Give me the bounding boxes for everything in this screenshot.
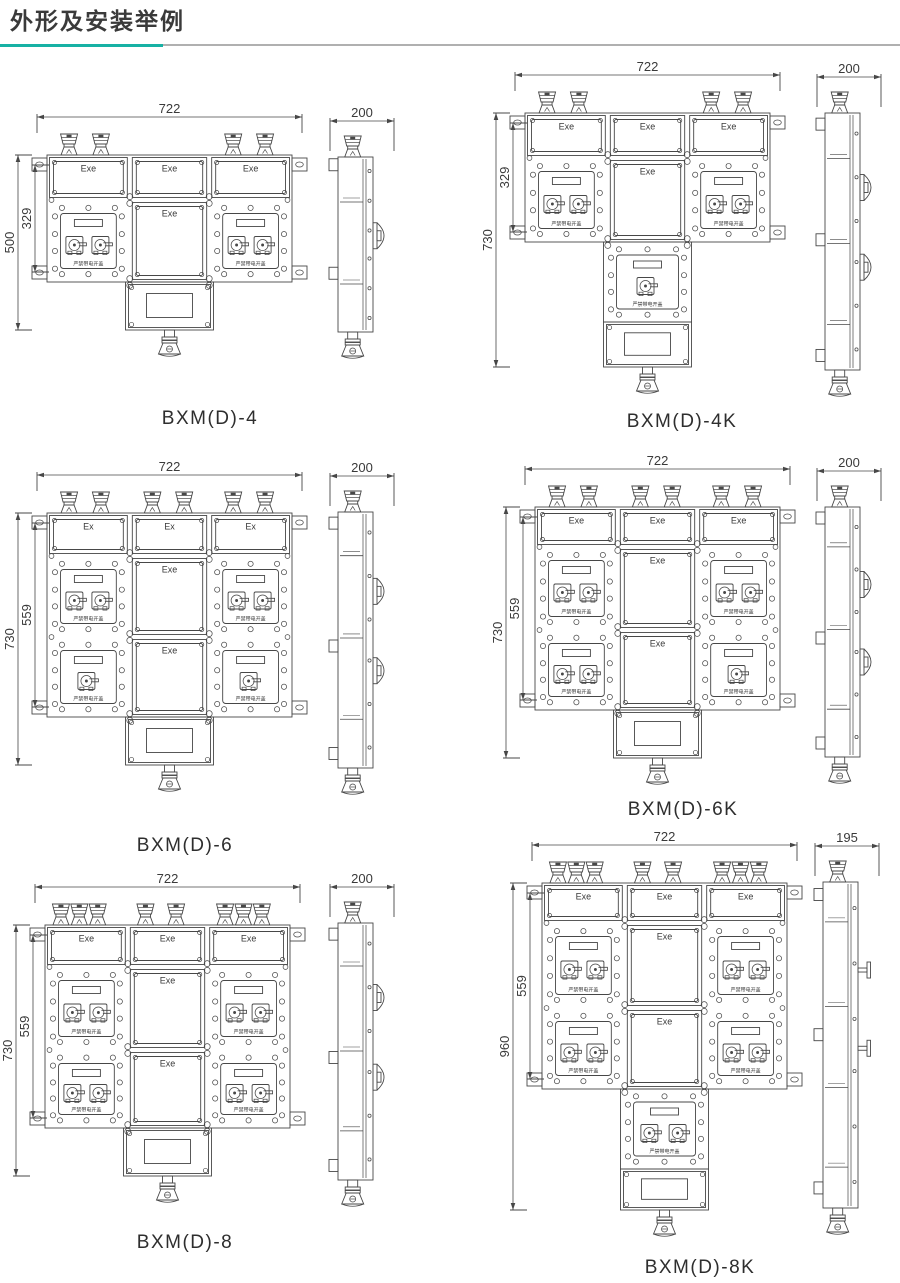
page-title: 外形及安装举例 [10,2,185,36]
svg-text:严禁带电开盖: 严禁带电开盖 [234,1029,264,1036]
svg-text:Exe: Exe [559,122,575,132]
svg-text:严禁带电开盖: 严禁带电开盖 [724,609,754,616]
side-view: 200 [318,456,430,810]
model-label: BXM(D)-4 [162,408,258,430]
svg-text:Ex: Ex [164,522,175,532]
svg-text:严禁带电开盖: 严禁带电开盖 [73,696,103,703]
svg-text:Exe: Exe [640,167,656,177]
svg-text:730: 730 [480,229,495,251]
side-view: 200 [805,57,900,412]
svg-text:严禁带电开盖: 严禁带电开盖 [649,1148,679,1155]
svg-text:严禁带电开盖: 严禁带电开盖 [561,609,591,616]
svg-text:严禁带电开盖: 严禁带电开盖 [236,696,266,703]
svg-text:722: 722 [157,871,179,886]
svg-text:730: 730 [0,1040,15,1062]
model-label: BXM(D)-6 [137,835,233,857]
svg-text:200: 200 [351,871,373,886]
svg-text:严禁带电开盖: 严禁带电开盖 [73,261,103,268]
svg-text:Exe: Exe [721,122,737,132]
svg-text:严禁带电开盖: 严禁带电开盖 [234,1107,264,1114]
front-view: 722ExeExeExe严禁带电开盖Exe严禁带电开盖500329 [2,91,322,368]
svg-text:严禁带电开盖: 严禁带电开盖 [714,221,744,228]
side-view: 195 [803,826,900,1250]
side-view: 200 [805,451,900,799]
svg-text:Exe: Exe [731,516,747,526]
svg-text:Exe: Exe [650,516,666,526]
svg-text:Exe: Exe [738,892,754,902]
svg-text:Exe: Exe [79,934,95,944]
svg-text:200: 200 [351,460,373,475]
svg-text:329: 329 [497,167,512,189]
svg-text:Exe: Exe [569,516,585,526]
svg-text:200: 200 [838,455,860,470]
svg-text:严禁带电开盖: 严禁带电开盖 [568,987,598,994]
side-view: 200 [318,101,430,374]
svg-text:200: 200 [351,105,373,120]
svg-text:严禁带电开盖: 严禁带电开盖 [71,1029,101,1036]
svg-text:严禁带电开盖: 严禁带电开盖 [568,1068,598,1075]
svg-text:Exe: Exe [162,565,178,575]
svg-text:Exe: Exe [81,164,97,174]
svg-text:Ex: Ex [245,522,256,532]
svg-text:Exe: Exe [657,1017,673,1027]
svg-text:722: 722 [159,459,181,474]
svg-text:200: 200 [838,61,860,76]
svg-text:Exe: Exe [162,646,178,656]
svg-text:500: 500 [2,232,17,254]
svg-text:严禁带电开盖: 严禁带电开盖 [561,689,591,696]
model-label: BXM(D)-6K [628,799,739,821]
svg-text:Exe: Exe [640,122,656,132]
front-view: 722ExExEx严禁带电开盖Exe严禁带电开盖严禁带电开盖Exe严禁带电开盖7… [2,449,322,803]
svg-text:722: 722 [159,101,181,116]
svg-text:195: 195 [836,830,858,845]
svg-text:严禁带电开盖: 严禁带电开盖 [71,1107,101,1114]
svg-text:严禁带电开盖: 严禁带电开盖 [236,261,266,268]
svg-text:严禁带电开盖: 严禁带电开盖 [724,689,754,696]
svg-text:730: 730 [2,628,17,650]
svg-text:722: 722 [647,453,669,468]
svg-text:严禁带电开盖: 严禁带电开盖 [73,616,103,623]
svg-text:559: 559 [507,598,522,620]
svg-text:Exe: Exe [650,639,666,649]
svg-text:Exe: Exe [650,556,666,566]
diagram-bxmd-4: BXM(D)-4 722ExeExeExe严禁带电开盖Exe严禁带电开盖5003… [0,0,900,1283]
svg-text:559: 559 [17,1016,32,1038]
svg-text:329: 329 [19,208,34,230]
svg-text:Exe: Exe [162,209,178,219]
svg-text:Exe: Exe [243,164,259,174]
catalog-page: 外形及安装举例 BXM(D)-4 722ExeExeExe严禁带电开盖Exe严禁… [0,0,900,1283]
model-label: BXM(D)-8 [137,1232,233,1254]
model-label: BXM(D)-8K [645,1257,756,1279]
svg-text:Exe: Exe [576,892,592,902]
svg-text:Exe: Exe [160,934,176,944]
svg-text:严禁带电开盖: 严禁带电开盖 [551,221,581,228]
model-label: BXM(D)-4K [627,411,738,433]
svg-text:722: 722 [637,59,659,74]
svg-text:Ex: Ex [83,522,94,532]
svg-text:Exe: Exe [241,934,257,944]
diagram-bxmd-8: BXM(D)-8 722ExeExeExe严禁带电开盖Exe严禁带电开盖严禁带电… [0,0,900,1283]
svg-text:960: 960 [497,1036,512,1058]
svg-text:559: 559 [514,975,529,997]
diagram-bxmd-8k: BXM(D)-8K 722ExeExeExe严禁带电开盖Exe严禁带电开盖严禁带… [0,0,900,1283]
svg-text:722: 722 [654,829,676,844]
svg-text:严禁带电开盖: 严禁带电开盖 [236,616,266,623]
title-rule-accent [0,44,163,47]
svg-text:严禁带电开盖: 严禁带电开盖 [731,1068,761,1075]
svg-text:Exe: Exe [657,892,673,902]
diagram-bxmd-6k: BXM(D)-6K 722ExeExeExe严禁带电开盖Exe严禁带电开盖严禁带… [0,0,900,1283]
svg-text:Exe: Exe [162,164,178,174]
front-view: 722ExeExeExe严禁带电开盖Exe严禁带电开盖严禁带电开盖Exe严禁带电… [490,443,810,796]
svg-text:Exe: Exe [160,976,176,986]
side-view: 200 [318,867,430,1222]
front-view: 722ExeExeExe严禁带电开盖Exe严禁带电开盖严禁带电开盖Exe严禁带电… [497,819,817,1248]
svg-text:730: 730 [490,622,505,644]
diagram-bxmd-4k: BXM(D)-4K 722ExeExeExe严禁带电开盖Exe严禁带电开盖严禁带… [0,0,900,1283]
front-view: 722ExeExeExe严禁带电开盖Exe严禁带电开盖严禁带电开盖730329 [480,49,800,405]
diagram-bxmd-6: BXM(D)-6 722ExExEx严禁带电开盖Exe严禁带电开盖严禁带电开盖E… [0,0,900,1283]
svg-text:严禁带电开盖: 严禁带电开盖 [731,987,761,994]
svg-text:559: 559 [19,604,34,626]
svg-text:Exe: Exe [160,1059,176,1069]
front-view: 722ExeExeExe严禁带电开盖Exe严禁带电开盖严禁带电开盖Exe严禁带电… [0,861,320,1214]
svg-text:严禁带电开盖: 严禁带电开盖 [632,301,662,308]
svg-text:Exe: Exe [657,932,673,942]
